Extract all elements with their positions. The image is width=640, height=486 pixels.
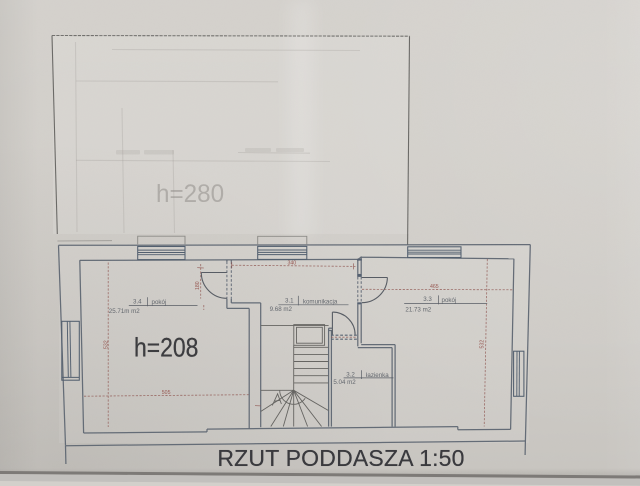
svg-text:h=208: h=208 [134,333,198,363]
